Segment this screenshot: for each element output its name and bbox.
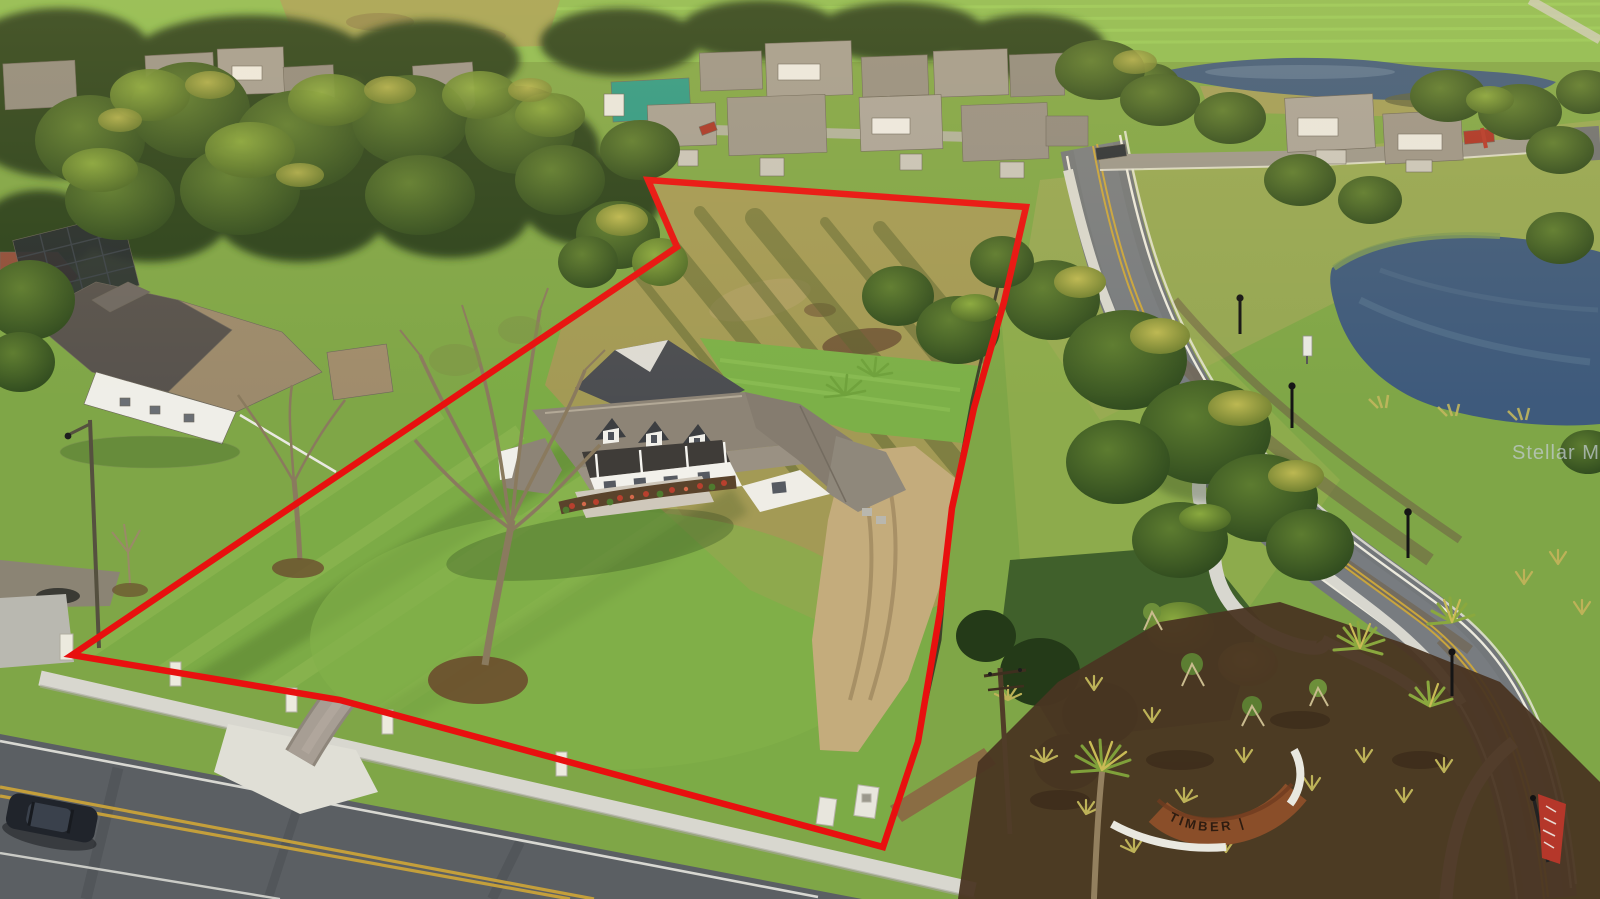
stellar-mls-watermark: Stellar MLS	[1512, 442, 1600, 464]
aerial-photo: TIMBER |	[0, 0, 1600, 899]
aerial-photo-canvas: TIMBER |	[0, 0, 1600, 899]
warm-light-overlay	[0, 0, 1600, 899]
